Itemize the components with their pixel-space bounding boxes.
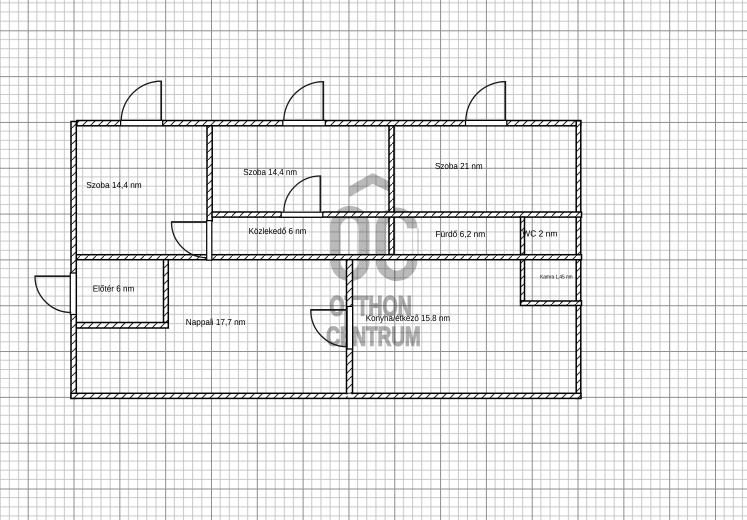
svg-text:WC 2 nm: WC 2 nm [522,228,557,238]
svg-text:Konyha/étkező 15.8 nm: Konyha/étkező 15.8 nm [366,313,450,323]
svg-text:CENTRUM: CENTRUM [326,321,420,351]
svg-text:Szoba 14,4 nm: Szoba 14,4 nm [86,180,142,190]
svg-text:Nappali 17,7 nm: Nappali 17,7 nm [186,317,246,327]
svg-text:Kamra 1,45 nm: Kamra 1,45 nm [540,274,573,280]
svg-text:Szoba 21 nm: Szoba 21 nm [435,161,483,171]
svg-text:Szoba 14,4 nm: Szoba 14,4 nm [243,167,297,177]
svg-text:Közlekedő 6 nm: Közlekedő 6 nm [249,226,307,236]
svg-text:Előtér 6 nm: Előtér 6 nm [93,284,135,294]
svg-text:Fürdő 6,2 nm: Fürdő 6,2 nm [435,229,485,239]
